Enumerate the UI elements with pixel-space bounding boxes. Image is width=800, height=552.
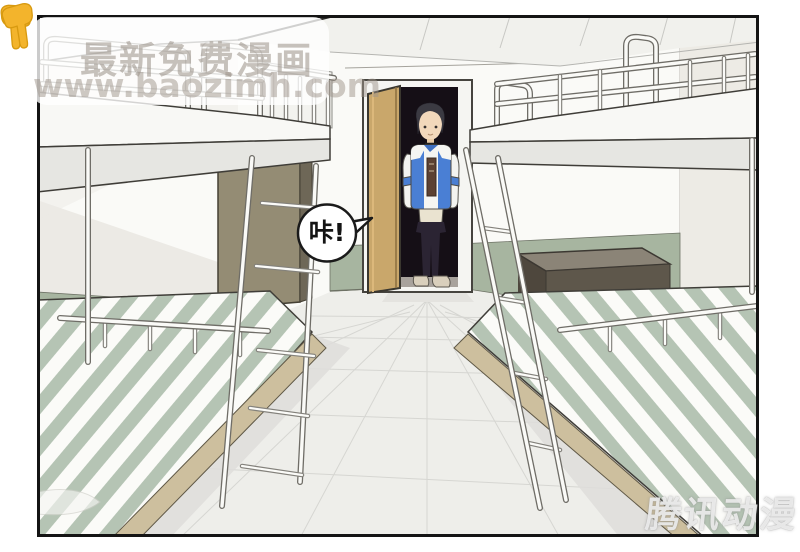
watermark-url: www.baozimh.com [33,66,381,105]
speech-bubble-text: 咔! [296,219,358,247]
door-panel [368,86,400,293]
pointing-hand-right-icon [0,0,39,54]
person-jacket [403,145,459,209]
person-shirt [419,209,443,224]
comic-page: 咔! 最新免费漫画 www.baozimh.com 腾讯动漫 [0,0,800,552]
bottom-right-watermark: 腾讯动漫 [643,486,800,538]
